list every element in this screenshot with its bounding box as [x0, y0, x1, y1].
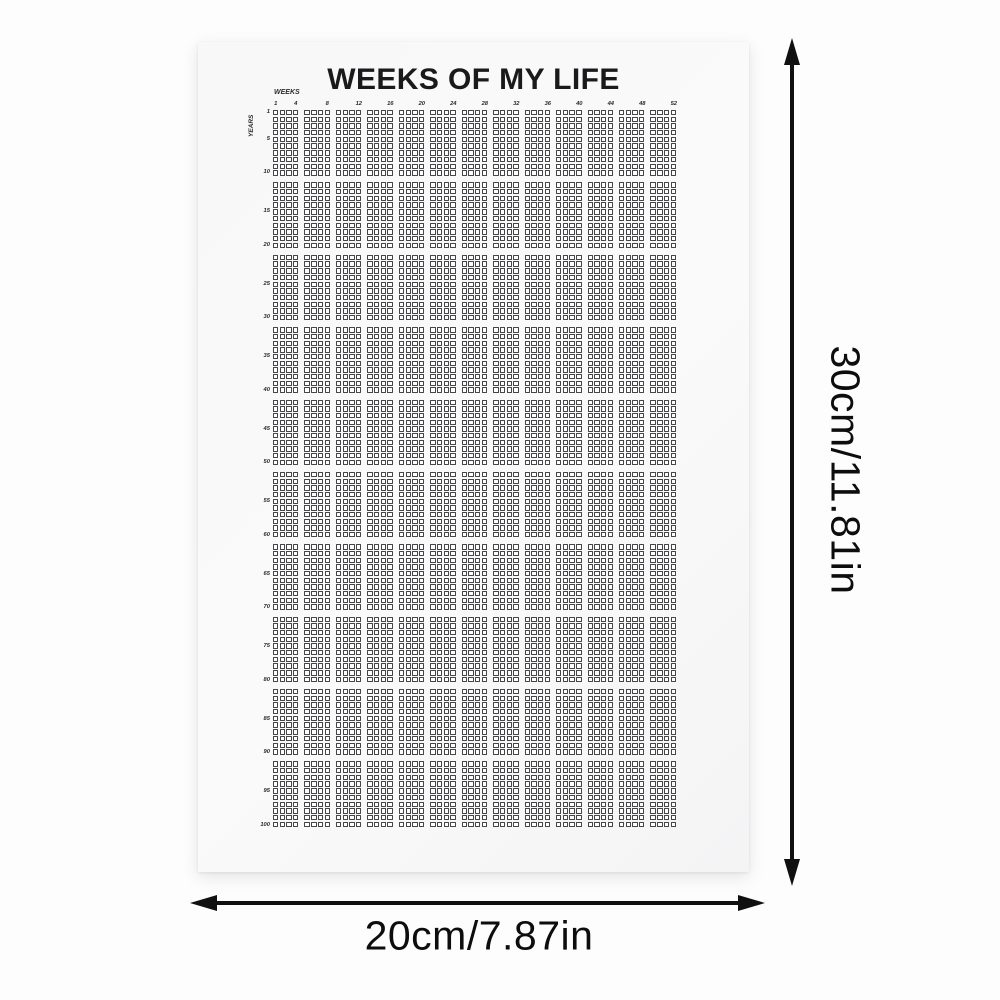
week-cell [601, 295, 606, 300]
week-cell [293, 117, 298, 122]
week-cell [356, 702, 361, 707]
week-cell [336, 689, 341, 694]
week-cell [601, 499, 606, 504]
week-cell [538, 479, 543, 484]
week-cell [286, 446, 291, 451]
week-cell [273, 598, 278, 603]
week-cell [513, 295, 518, 300]
week-cell [343, 387, 348, 392]
week-cell [412, 341, 417, 346]
week-cell [626, 255, 631, 260]
week-cell [356, 236, 361, 241]
week-cell [545, 236, 550, 241]
week-cell [286, 164, 291, 169]
week-cell [374, 564, 379, 569]
week-cell [450, 406, 455, 411]
week-cell [632, 446, 637, 451]
week-cell [430, 400, 435, 405]
week-cell [325, 729, 330, 734]
week-cell [468, 578, 473, 583]
week-cell [462, 433, 467, 438]
week-cell [293, 505, 298, 510]
week-cell [311, 440, 316, 445]
week-cell [437, 637, 442, 642]
week-cell [462, 413, 467, 418]
week-cell [664, 677, 669, 682]
week-cell [399, 196, 404, 201]
week-cell [632, 288, 637, 293]
week-cell [412, 308, 417, 313]
week-cell [556, 663, 561, 668]
month-column-block [430, 327, 455, 393]
week-cell [594, 584, 599, 589]
week-cell [626, 453, 631, 458]
week-cell [482, 571, 487, 576]
week-cell [576, 591, 581, 596]
week-cell [336, 722, 341, 727]
week-cell [507, 236, 512, 241]
week-cell [576, 749, 581, 754]
week-cell [336, 334, 341, 339]
week-cell [619, 743, 624, 748]
week-cell [619, 505, 624, 510]
week-cell [626, 743, 631, 748]
week-cell [462, 479, 467, 484]
week-cell [318, 295, 323, 300]
week-cell [563, 426, 568, 431]
week-cell [349, 578, 354, 583]
week-cell [399, 229, 404, 234]
week-cell [437, 400, 442, 405]
week-cell [325, 460, 330, 465]
week-cell [513, 499, 518, 504]
week-cell [507, 716, 512, 721]
week-cell [374, 499, 379, 504]
week-cell [419, 327, 424, 332]
week-cell [531, 150, 536, 155]
week-cell [664, 275, 669, 280]
week-cell [437, 460, 442, 465]
decade-row-block [273, 761, 676, 827]
week-cell [531, 663, 536, 668]
week-cell [462, 623, 467, 628]
week-cell [650, 749, 655, 754]
week-cell [594, 702, 599, 707]
week-cell [437, 327, 442, 332]
week-cell [657, 505, 662, 510]
week-cell [343, 716, 348, 721]
week-cell [588, 532, 593, 537]
week-cell [356, 295, 361, 300]
week-cell [475, 137, 480, 142]
week-cell [311, 387, 316, 392]
week-cell [343, 709, 348, 714]
week-cell [304, 460, 309, 465]
week-cell [406, 485, 411, 490]
week-cell [588, 400, 593, 405]
week-cell [556, 420, 561, 425]
week-cell [556, 347, 561, 352]
week-cell [273, 282, 278, 287]
week-cell [444, 453, 449, 458]
week-cell [349, 202, 354, 207]
week-cell [664, 308, 669, 313]
week-cell [626, 702, 631, 707]
week-cell [311, 374, 316, 379]
week-cell [576, 446, 581, 451]
month-column-block [273, 472, 298, 538]
week-cell [343, 525, 348, 530]
week-cell [594, 170, 599, 175]
week-cell [493, 617, 498, 622]
week-cell [430, 623, 435, 628]
week-cell [450, 157, 455, 162]
week-cell [619, 157, 624, 162]
week-cell [387, 532, 392, 537]
week-cell [588, 598, 593, 603]
week-cell [626, 137, 631, 142]
week-cell [493, 117, 498, 122]
week-cell [286, 157, 291, 162]
week-cell [399, 387, 404, 392]
week-cell [657, 236, 662, 241]
week-cell [619, 117, 624, 122]
week-cell [387, 302, 392, 307]
month-column-block [304, 110, 329, 176]
month-column-block [619, 255, 644, 321]
week-cell [482, 617, 487, 622]
week-cell [311, 334, 316, 339]
week-cell [462, 551, 467, 556]
week-cell [475, 446, 480, 451]
week-cell [538, 591, 543, 596]
week-cell [482, 130, 487, 135]
week-cell [412, 354, 417, 359]
week-cell [468, 492, 473, 497]
week-cell [343, 558, 348, 563]
week-cell [664, 479, 669, 484]
week-cell [406, 308, 411, 313]
week-cell [419, 544, 424, 549]
week-cell [406, 374, 411, 379]
week-cell [343, 236, 348, 241]
week-cell [381, 492, 386, 497]
week-cell [325, 743, 330, 748]
week-cell [639, 302, 644, 307]
week-cell [576, 696, 581, 701]
week-cell [482, 670, 487, 675]
week-cell [374, 716, 379, 721]
week-cell [374, 189, 379, 194]
week-cell [356, 123, 361, 128]
week-cell [280, 302, 285, 307]
month-column-block [304, 761, 329, 827]
week-cell [513, 643, 518, 648]
week-cell [507, 150, 512, 155]
week-cell [311, 216, 316, 221]
week-cell [318, 499, 323, 504]
week-cell [664, 400, 669, 405]
month-column-block [493, 617, 518, 683]
week-cell [293, 354, 298, 359]
week-cell [626, 479, 631, 484]
week-cell [545, 275, 550, 280]
week-cell [336, 768, 341, 773]
week-cell [406, 460, 411, 465]
week-cell [311, 578, 316, 583]
week-cell [437, 446, 442, 451]
week-cell [343, 315, 348, 320]
week-cell [594, 308, 599, 313]
week-cell [513, 130, 518, 135]
week-cell [286, 182, 291, 187]
week-cell [500, 209, 505, 214]
week-cell [399, 453, 404, 458]
week-cell [538, 413, 543, 418]
week-cell [374, 630, 379, 635]
year-number-label: 85 [264, 717, 270, 723]
week-cell [406, 157, 411, 162]
week-cell [304, 406, 309, 411]
week-cell [336, 216, 341, 221]
month-column-block [273, 689, 298, 755]
week-cell [343, 788, 348, 793]
week-cell [650, 420, 655, 425]
week-cell [594, 544, 599, 549]
week-cell [444, 630, 449, 635]
week-cell [318, 354, 323, 359]
week-cell [475, 571, 480, 576]
week-cell [650, 308, 655, 313]
week-cell [531, 413, 536, 418]
week-cell [374, 485, 379, 490]
week-cell [381, 137, 386, 142]
week-cell [349, 302, 354, 307]
week-cell [412, 492, 417, 497]
week-cell [280, 677, 285, 682]
week-cell [671, 433, 676, 438]
week-cell [626, 446, 631, 451]
week-cell [608, 551, 613, 556]
week-cell [545, 460, 550, 465]
week-cell [367, 130, 372, 135]
week-cell [450, 236, 455, 241]
week-cell [450, 216, 455, 221]
week-cell [444, 406, 449, 411]
week-cell [569, 308, 574, 313]
week-cell [650, 347, 655, 352]
week-cell [356, 598, 361, 603]
week-cell [367, 400, 372, 405]
week-cell [657, 196, 662, 201]
week-cell [325, 209, 330, 214]
week-cell [545, 308, 550, 313]
week-cell [500, 255, 505, 260]
year-number-label: 45 [264, 427, 270, 433]
week-cell [493, 223, 498, 228]
week-cell [671, 123, 676, 128]
week-cell [374, 643, 379, 648]
week-cell [387, 479, 392, 484]
week-cell [538, 440, 543, 445]
week-cell [671, 302, 676, 307]
week-cell [387, 505, 392, 510]
week-cell [657, 216, 662, 221]
week-cell [475, 400, 480, 405]
week-cell [419, 702, 424, 707]
week-cell [399, 604, 404, 609]
week-cell [293, 512, 298, 517]
week-cell [406, 663, 411, 668]
week-cell [563, 598, 568, 603]
week-cell [513, 223, 518, 228]
week-cell [293, 275, 298, 280]
week-cell [419, 677, 424, 682]
week-cell [563, 584, 568, 589]
week-cell [412, 630, 417, 635]
week-cell [588, 130, 593, 135]
week-cell [343, 598, 348, 603]
week-cell [594, 164, 599, 169]
week-cell [367, 261, 372, 266]
week-cell [293, 308, 298, 313]
week-cell [374, 196, 379, 201]
week-cell [318, 617, 323, 622]
week-cell [632, 670, 637, 675]
month-column-block [650, 472, 675, 538]
week-cell [387, 788, 392, 793]
week-cell [387, 433, 392, 438]
week-cell [430, 302, 435, 307]
week-cell [531, 302, 536, 307]
week-cell [381, 689, 386, 694]
week-cell [406, 722, 411, 727]
week-cell [293, 387, 298, 392]
week-cell [671, 637, 676, 642]
week-cell [626, 492, 631, 497]
week-cell [374, 327, 379, 332]
week-cell [462, 367, 467, 372]
week-cell [657, 643, 662, 648]
week-cell [601, 268, 606, 273]
week-cell [556, 689, 561, 694]
week-cell [387, 598, 392, 603]
week-cell [576, 716, 581, 721]
week-cell [304, 761, 309, 766]
week-cell [304, 736, 309, 741]
week-cell [367, 743, 372, 748]
week-cell [444, 505, 449, 510]
week-cell [367, 170, 372, 175]
week-cell [657, 485, 662, 490]
week-cell [626, 433, 631, 438]
week-cell [493, 604, 498, 609]
week-cell [588, 499, 593, 504]
week-cell [507, 137, 512, 142]
week-cell [650, 354, 655, 359]
week-cell [387, 327, 392, 332]
week-cell [273, 650, 278, 655]
week-cell [608, 420, 613, 425]
week-cell [304, 578, 309, 583]
week-cell [556, 637, 561, 642]
week-cell [304, 295, 309, 300]
week-cell [343, 196, 348, 201]
week-cell [325, 216, 330, 221]
week-cell [381, 295, 386, 300]
week-cell [626, 381, 631, 386]
week-cell [419, 367, 424, 372]
week-cell [556, 584, 561, 589]
week-cell [468, 544, 473, 549]
week-cell [601, 657, 606, 662]
week-cell [588, 196, 593, 201]
week-cell [304, 623, 309, 628]
week-cell [343, 479, 348, 484]
week-cell [412, 302, 417, 307]
week-cell [563, 650, 568, 655]
week-cell [286, 123, 291, 128]
week-cell [430, 223, 435, 228]
week-cell [419, 637, 424, 642]
week-cell [318, 591, 323, 596]
week-cell [273, 472, 278, 477]
week-cell [525, 347, 530, 352]
week-cell [619, 406, 624, 411]
week-cell [343, 663, 348, 668]
week-cell [626, 532, 631, 537]
week-cell [374, 598, 379, 603]
week-cell [576, 236, 581, 241]
week-cell [311, 268, 316, 273]
week-cell [482, 164, 487, 169]
week-cell [632, 381, 637, 386]
week-cell [468, 460, 473, 465]
week-cell [430, 374, 435, 379]
week-cell [545, 472, 550, 477]
week-cell [556, 143, 561, 148]
week-cell [500, 578, 505, 583]
week-cell [356, 637, 361, 642]
week-cell [531, 571, 536, 576]
week-cell [437, 347, 442, 352]
week-cell [430, 327, 435, 332]
week-cell [430, 367, 435, 372]
week-cell [468, 261, 473, 266]
week-cell [626, 505, 631, 510]
week-cell [594, 268, 599, 273]
week-cell [280, 768, 285, 773]
week-cell [437, 716, 442, 721]
week-cell [286, 202, 291, 207]
week-cell [304, 302, 309, 307]
week-cell [430, 255, 435, 260]
week-cell [419, 696, 424, 701]
week-cell [556, 558, 561, 563]
week-cell [619, 663, 624, 668]
week-cell [286, 815, 291, 820]
week-cell [657, 223, 662, 228]
week-cell [430, 308, 435, 313]
week-cell [482, 400, 487, 405]
month-column-block [399, 255, 424, 321]
week-cell [356, 182, 361, 187]
week-cell [304, 643, 309, 648]
week-cell [280, 663, 285, 668]
week-cell [468, 400, 473, 405]
month-column-block [462, 327, 487, 393]
week-cell [412, 130, 417, 135]
